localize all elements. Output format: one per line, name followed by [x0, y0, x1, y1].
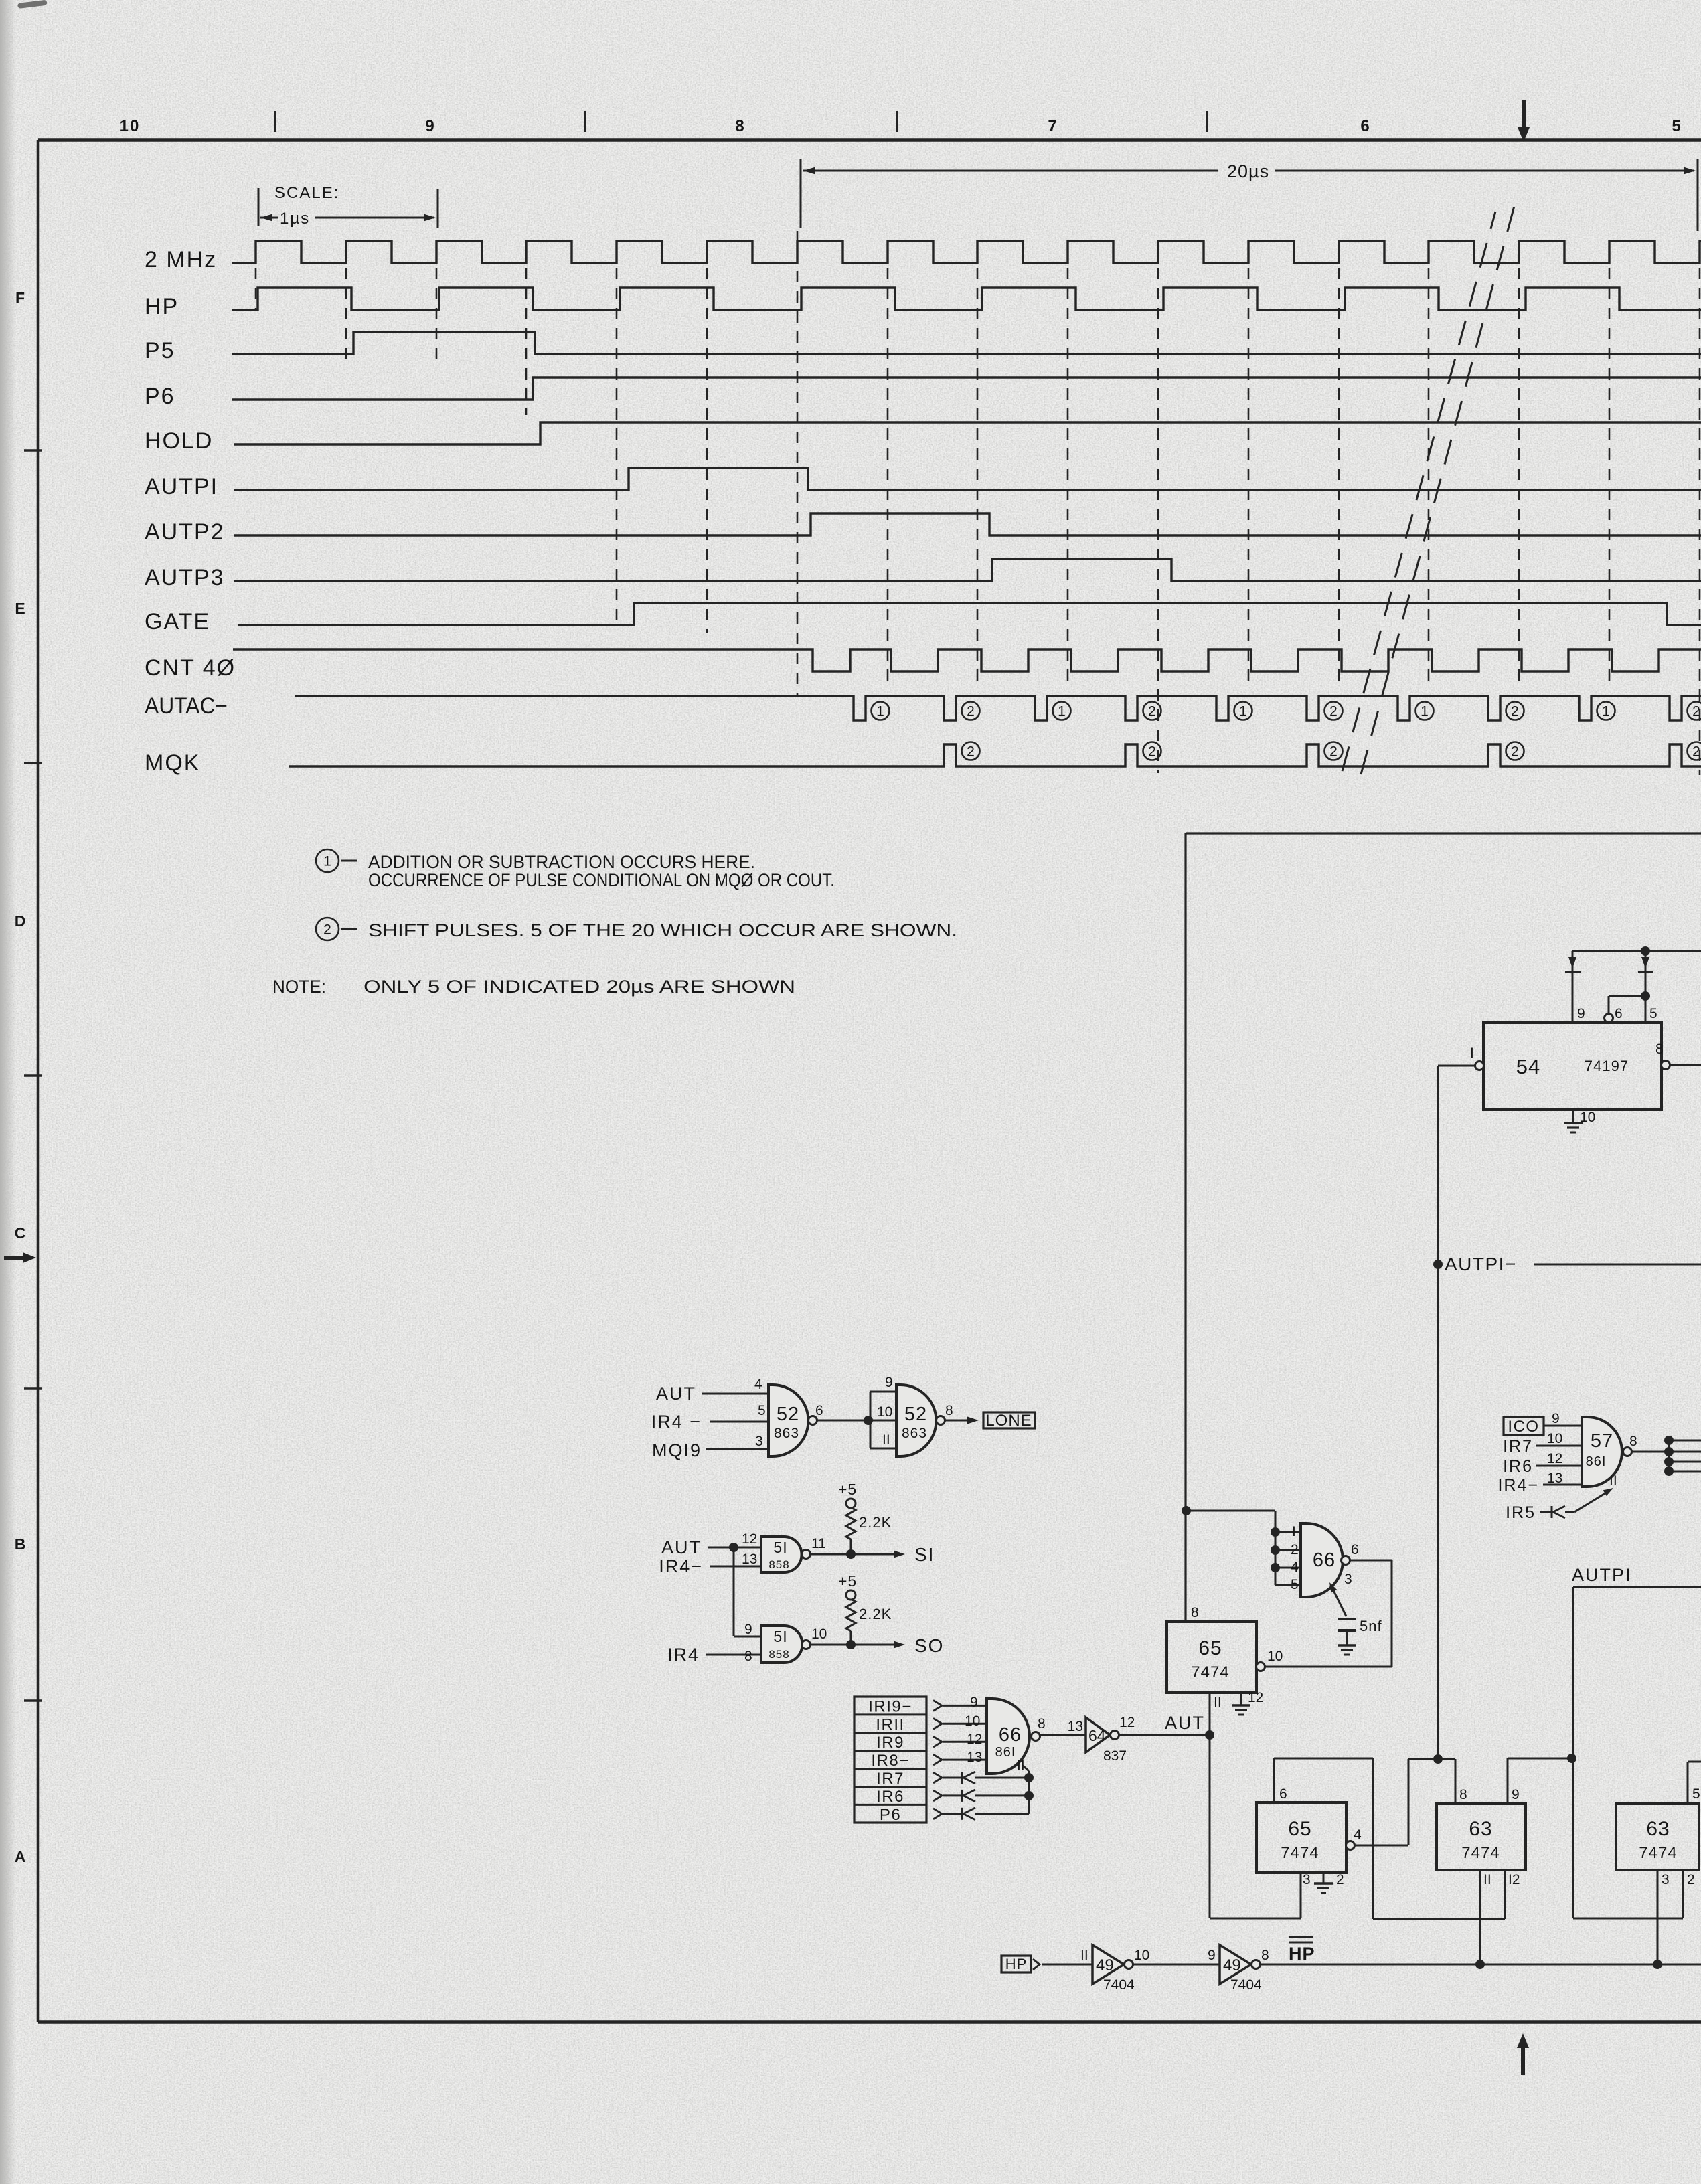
- svg-text:2: 2: [1148, 744, 1156, 760]
- svg-text:10: 10: [1134, 1948, 1149, 1963]
- svg-text:63: 63: [1646, 1818, 1670, 1840]
- svg-text:10: 10: [1547, 1431, 1562, 1446]
- svg-text:858: 858: [768, 1558, 789, 1571]
- svg-text:II: II: [1609, 1473, 1617, 1489]
- svg-text:49: 49: [1223, 1956, 1241, 1975]
- svg-text:7404: 7404: [1230, 1977, 1262, 1993]
- svg-text:GATE: GATE: [145, 609, 210, 635]
- svg-text:HP: HP: [1005, 1956, 1028, 1972]
- svg-text:2: 2: [1511, 704, 1519, 720]
- svg-text:A: A: [15, 1848, 26, 1865]
- svg-text:1µs: 1µs: [280, 209, 310, 228]
- svg-text:CNT 4Ø: CNT 4Ø: [145, 655, 236, 681]
- svg-text:2: 2: [1511, 744, 1519, 760]
- svg-text:9: 9: [1208, 1948, 1216, 1963]
- svg-text:1: 1: [1058, 704, 1066, 720]
- svg-text:9: 9: [1552, 1411, 1560, 1426]
- svg-text:AUT: AUT: [661, 1537, 702, 1558]
- svg-text:2: 2: [1329, 704, 1338, 720]
- svg-text:P5: P5: [145, 338, 175, 363]
- svg-text:ICO: ICO: [1508, 1418, 1539, 1436]
- svg-text:8: 8: [945, 1403, 953, 1418]
- svg-text:AUT: AUT: [1165, 1713, 1205, 1733]
- svg-text:2: 2: [967, 744, 975, 760]
- svg-text:AUT: AUT: [656, 1383, 696, 1404]
- svg-text:F: F: [15, 289, 25, 307]
- svg-text:10: 10: [811, 1626, 827, 1642]
- svg-text:3: 3: [1662, 1872, 1670, 1887]
- svg-text:IR5: IR5: [1506, 1503, 1536, 1522]
- svg-text:5: 5: [1672, 117, 1682, 135]
- svg-text:LONE: LONE: [985, 1412, 1032, 1430]
- svg-text:8: 8: [1191, 1605, 1199, 1620]
- svg-text:D: D: [15, 912, 26, 930]
- svg-text:MQI9: MQI9: [652, 1440, 702, 1460]
- svg-text:6: 6: [1351, 1542, 1359, 1558]
- svg-text:8: 8: [1655, 1041, 1664, 1057]
- svg-text:8: 8: [735, 117, 745, 135]
- svg-text:13: 13: [967, 1750, 982, 1765]
- svg-text:NOTE:: NOTE:: [272, 977, 326, 997]
- svg-text:P6: P6: [880, 1806, 901, 1824]
- svg-text:OCCURRENCE OF PULSE CONDITIONA: OCCURRENCE OF PULSE CONDITIONAL ON MQØ O…: [368, 870, 835, 890]
- svg-text:4: 4: [754, 1377, 762, 1392]
- svg-text:2: 2: [1291, 1542, 1299, 1558]
- svg-text:HP: HP: [145, 294, 179, 319]
- svg-text:+5: +5: [838, 1572, 857, 1590]
- svg-text:5: 5: [1291, 1577, 1299, 1592]
- svg-text:6: 6: [1615, 1006, 1623, 1021]
- svg-text:5I: 5I: [773, 1539, 787, 1556]
- svg-text:6: 6: [815, 1403, 823, 1418]
- svg-text:65: 65: [1198, 1637, 1222, 1659]
- svg-text:B: B: [15, 1535, 26, 1553]
- svg-text:5nf: 5nf: [1360, 1618, 1382, 1634]
- svg-text:IR4: IR4: [667, 1645, 700, 1665]
- svg-text:837: 837: [1103, 1748, 1127, 1764]
- svg-text:5: 5: [758, 1403, 766, 1418]
- svg-text:I: I: [1470, 1045, 1474, 1061]
- svg-text:11: 11: [811, 1536, 826, 1551]
- svg-text:13: 13: [1068, 1719, 1083, 1734]
- svg-text:52: 52: [904, 1404, 927, 1425]
- svg-text:6: 6: [1279, 1786, 1287, 1802]
- svg-text:3: 3: [755, 1434, 763, 1449]
- svg-text:1: 1: [1239, 704, 1247, 720]
- svg-text:9: 9: [885, 1375, 893, 1390]
- svg-text:HP: HP: [1289, 1944, 1315, 1964]
- svg-text:5: 5: [1649, 1006, 1657, 1021]
- svg-text:2: 2: [1687, 1872, 1695, 1887]
- svg-text:9: 9: [1512, 1787, 1520, 1802]
- svg-text:20µs: 20µs: [1227, 161, 1269, 181]
- svg-text:8: 8: [744, 1649, 752, 1664]
- svg-text:2: 2: [967, 704, 975, 720]
- svg-text:IR4−: IR4−: [1497, 1476, 1539, 1495]
- svg-text:SHIFT PULSES. 5 OF THE 20 WHIC: SHIFT PULSES. 5 OF THE 20 WHICH OCCUR AR…: [368, 920, 957, 940]
- svg-text:3: 3: [1344, 1572, 1352, 1587]
- svg-text:12: 12: [1248, 1690, 1263, 1705]
- svg-text:1: 1: [876, 704, 884, 720]
- svg-text:SO: SO: [914, 1635, 944, 1656]
- svg-text:IR4 −: IR4 −: [651, 1412, 702, 1432]
- svg-text:64: 64: [1088, 1727, 1106, 1744]
- svg-text:2: 2: [1329, 744, 1338, 760]
- svg-text:IR8−: IR8−: [871, 1752, 909, 1770]
- svg-text:10: 10: [120, 117, 141, 135]
- svg-text:AUTPI: AUTPI: [1572, 1565, 1632, 1585]
- svg-text:8: 8: [1459, 1787, 1467, 1802]
- svg-text:MQK: MQK: [145, 750, 200, 776]
- svg-text:66: 66: [1313, 1549, 1335, 1571]
- svg-text:86I: 86I: [995, 1745, 1016, 1760]
- svg-text:8: 8: [1038, 1716, 1046, 1732]
- svg-text:12: 12: [742, 1531, 757, 1547]
- svg-text:863: 863: [774, 1426, 799, 1441]
- svg-text:4: 4: [1354, 1827, 1362, 1843]
- svg-text:9: 9: [1577, 1006, 1585, 1021]
- svg-text:10: 10: [1580, 1110, 1595, 1125]
- svg-text:II: II: [882, 1432, 890, 1448]
- svg-text:IR7: IR7: [876, 1770, 904, 1788]
- svg-text:5: 5: [1692, 1786, 1700, 1802]
- svg-text:IRII: IRII: [876, 1715, 904, 1734]
- svg-text:IR9: IR9: [876, 1734, 904, 1752]
- svg-text:52: 52: [777, 1404, 799, 1425]
- svg-text:ADDITION OR SUBTRACTION OCCURS: ADDITION OR SUBTRACTION OCCURS HERE.: [368, 852, 755, 872]
- svg-text:63: 63: [1469, 1818, 1492, 1840]
- svg-text:I: I: [1292, 1524, 1296, 1539]
- svg-text:863: 863: [902, 1426, 927, 1441]
- svg-text:2: 2: [1336, 1872, 1344, 1887]
- svg-text:AUTP3: AUTP3: [145, 565, 225, 590]
- svg-text:7474: 7474: [1639, 1844, 1677, 1862]
- svg-text:IR7: IR7: [1503, 1437, 1533, 1456]
- svg-text:7474: 7474: [1461, 1844, 1500, 1862]
- svg-text:I2: I2: [1508, 1872, 1520, 1887]
- svg-text:12: 12: [1547, 1451, 1562, 1466]
- svg-text:12: 12: [1119, 1715, 1135, 1730]
- svg-text:10: 10: [1267, 1649, 1283, 1664]
- svg-text:5I: 5I: [773, 1628, 787, 1645]
- svg-text:1: 1: [323, 854, 331, 869]
- svg-text:54: 54: [1516, 1055, 1540, 1078]
- svg-text:7474: 7474: [1191, 1663, 1229, 1681]
- svg-text:IRI9−: IRI9−: [868, 1697, 912, 1715]
- svg-text:7474: 7474: [1281, 1844, 1319, 1862]
- svg-text:II: II: [1080, 1948, 1088, 1963]
- svg-text:10: 10: [877, 1404, 892, 1420]
- svg-text:ONLY 5 OF INDICATED 20µs ARE S: ONLY 5 OF INDICATED 20µs ARE SHOWN: [363, 977, 795, 997]
- svg-text:SI: SI: [914, 1544, 935, 1565]
- svg-text:13: 13: [1547, 1471, 1562, 1486]
- svg-text:8: 8: [1261, 1948, 1269, 1963]
- svg-text:74197: 74197: [1585, 1058, 1629, 1074]
- svg-text:9: 9: [744, 1622, 752, 1637]
- svg-text:IR6: IR6: [1503, 1457, 1533, 1476]
- svg-text:57: 57: [1591, 1430, 1613, 1452]
- svg-text:AUTPI−: AUTPI−: [1445, 1254, 1517, 1274]
- svg-text:AUTP2: AUTP2: [145, 519, 225, 545]
- svg-text:8: 8: [1629, 1434, 1637, 1449]
- svg-text:65: 65: [1288, 1818, 1311, 1840]
- svg-text:9: 9: [425, 117, 435, 135]
- svg-text:7: 7: [1048, 117, 1058, 135]
- svg-text:2: 2: [1148, 704, 1156, 720]
- svg-text:2: 2: [323, 922, 331, 938]
- svg-text:IR4−: IR4−: [659, 1556, 703, 1576]
- svg-text:1: 1: [1602, 704, 1610, 720]
- svg-text:3: 3: [1303, 1872, 1311, 1887]
- svg-text:86I: 86I: [1586, 1454, 1607, 1469]
- svg-text:2.2K: 2.2K: [859, 1606, 892, 1622]
- svg-text:AUTAC−: AUTAC−: [145, 693, 228, 719]
- svg-text:E: E: [15, 600, 25, 617]
- svg-text:10: 10: [965, 1713, 980, 1729]
- svg-text:858: 858: [768, 1648, 789, 1661]
- svg-text:II: II: [1214, 1695, 1222, 1710]
- svg-text:SCALE:: SCALE:: [274, 184, 339, 202]
- svg-text:AUTPI: AUTPI: [145, 474, 218, 499]
- svg-text:6: 6: [1360, 117, 1370, 135]
- svg-text:1: 1: [1421, 704, 1429, 720]
- svg-text:2.2K: 2.2K: [859, 1514, 892, 1531]
- svg-text:IR6: IR6: [876, 1788, 904, 1806]
- svg-text:P6: P6: [145, 384, 175, 409]
- svg-text:HOLD: HOLD: [145, 428, 213, 454]
- svg-text:C: C: [15, 1224, 26, 1242]
- svg-text:2 MHz: 2 MHz: [145, 247, 217, 272]
- svg-text:9: 9: [970, 1695, 978, 1710]
- svg-text:4: 4: [1291, 1560, 1299, 1575]
- svg-text:II: II: [1483, 1872, 1491, 1887]
- svg-text:13: 13: [742, 1551, 757, 1567]
- svg-text:66: 66: [999, 1724, 1022, 1746]
- svg-text:12: 12: [967, 1732, 982, 1747]
- svg-text:+5: +5: [838, 1481, 857, 1498]
- svg-text:7404: 7404: [1103, 1977, 1135, 1993]
- svg-text:49: 49: [1096, 1956, 1114, 1975]
